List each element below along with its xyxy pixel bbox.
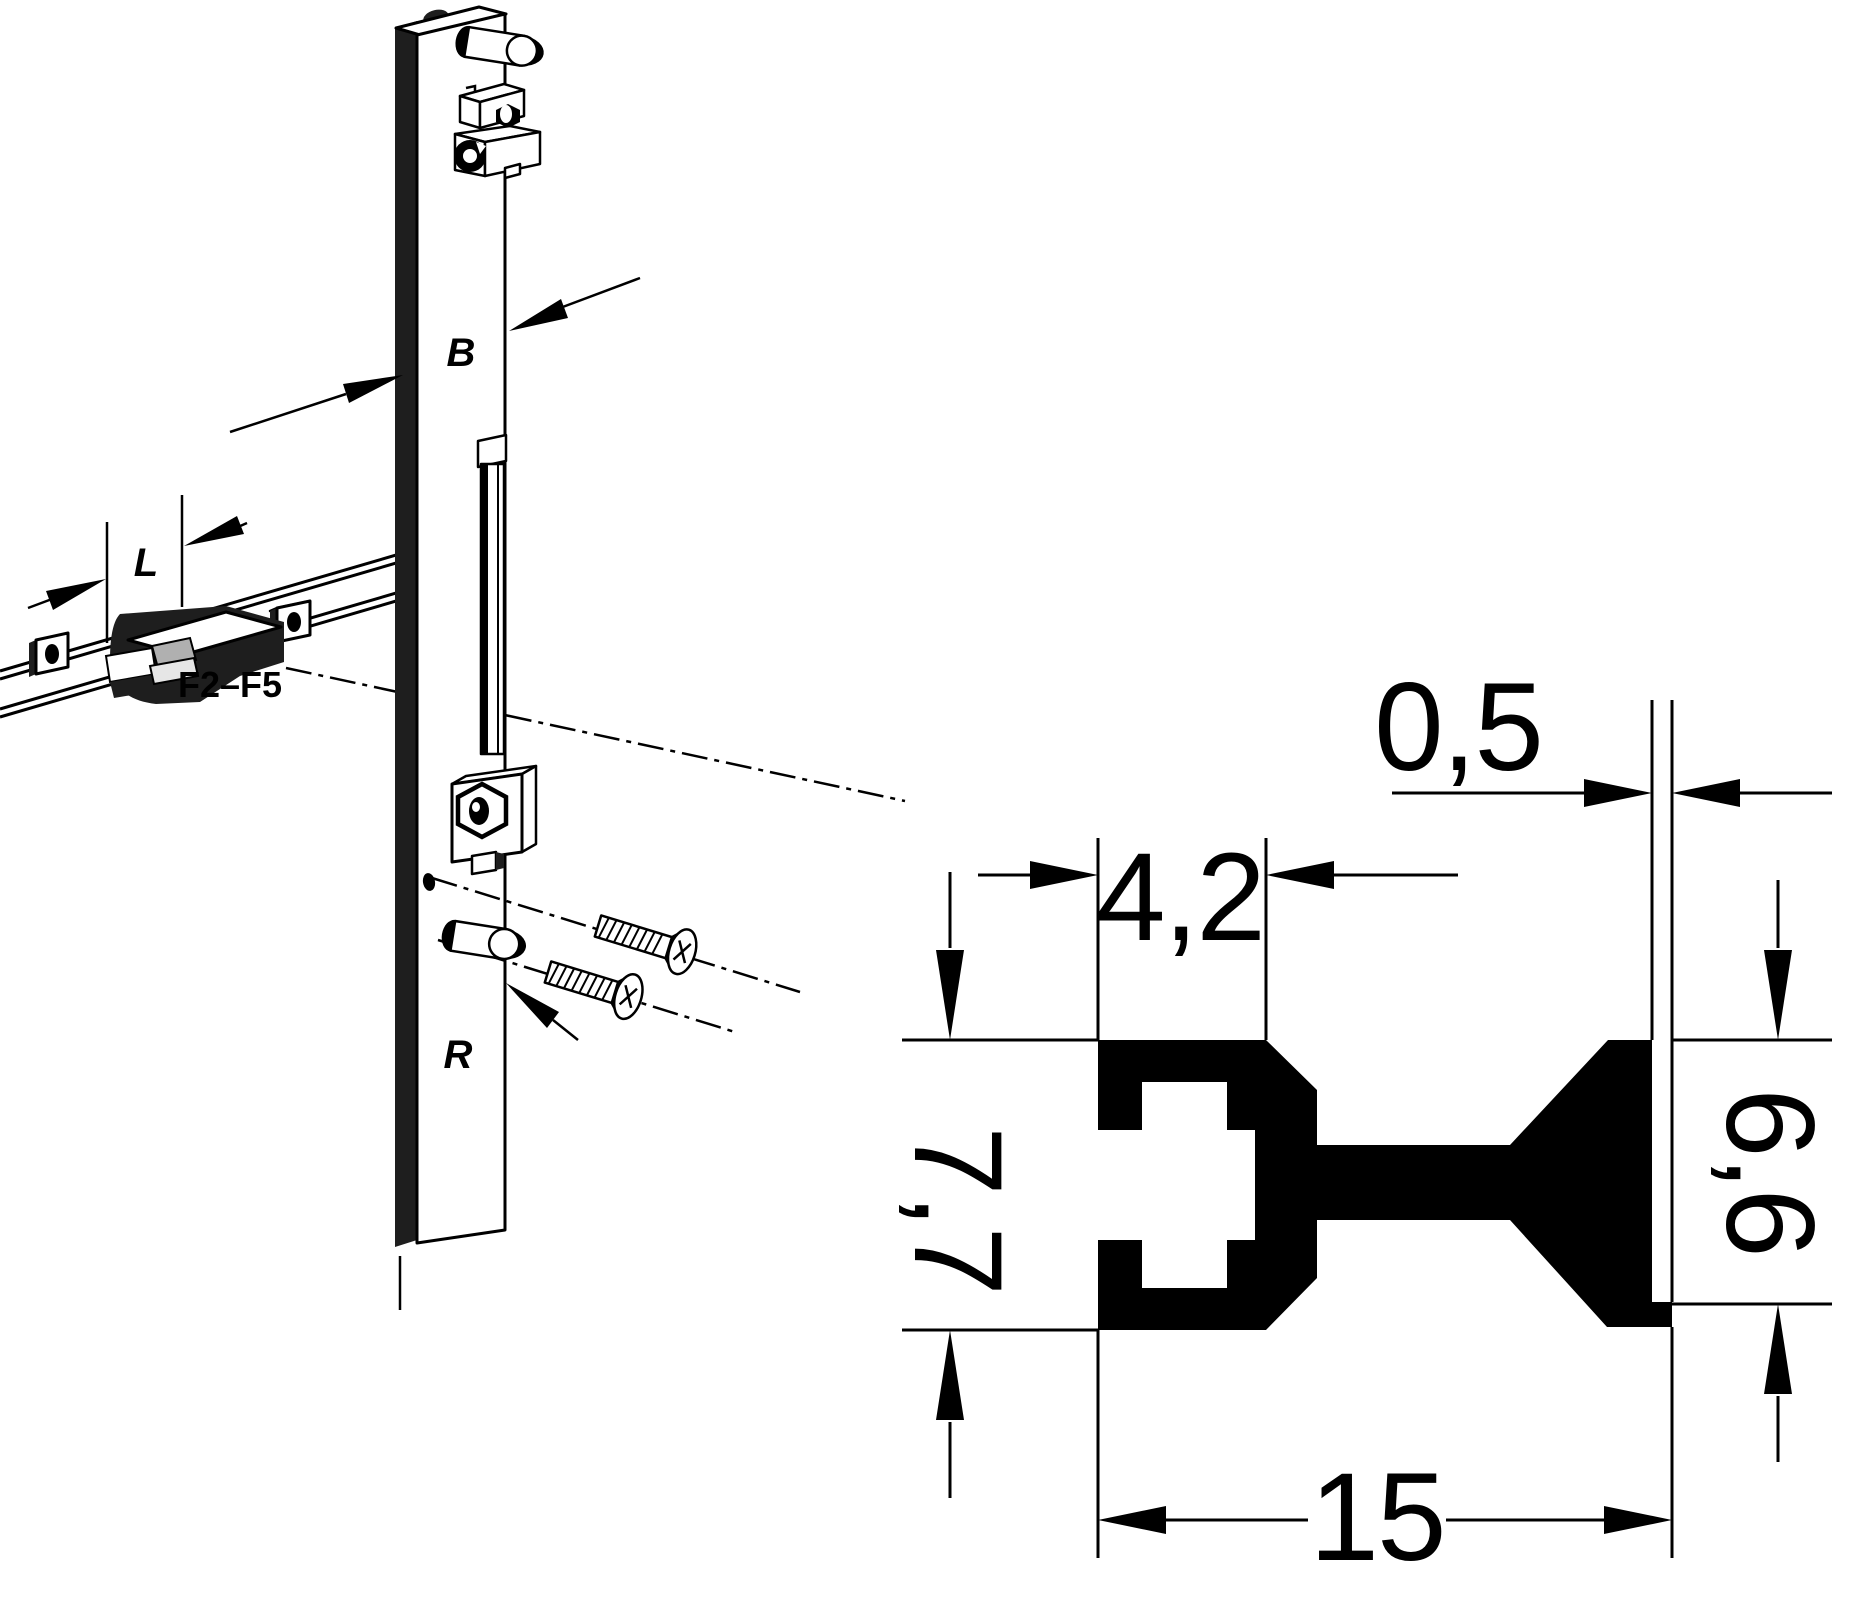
nut-hole-icon	[287, 612, 301, 632]
arrowhead-icon	[1030, 861, 1098, 889]
thickness-pointer	[230, 375, 403, 432]
label-clamp-range: F2–F5	[178, 664, 282, 705]
dim-text-6-6: 6,6	[1700, 1088, 1839, 1256]
label-l: L	[134, 541, 158, 585]
dim-text-7-7: 7,7	[888, 1126, 1027, 1294]
arrowhead-icon	[936, 950, 964, 1040]
arrowhead-icon	[1764, 950, 1792, 1040]
clamp-fitting	[454, 126, 540, 178]
arrowhead-icon	[1098, 1506, 1166, 1534]
arrowhead-icon	[1672, 779, 1740, 807]
face-slot	[478, 435, 506, 754]
rail-square-nut-left	[29, 633, 68, 677]
rail-axis-centerline	[286, 668, 905, 801]
dim-text-0-5: 0,5	[1374, 658, 1542, 797]
isometric-assembly-figure: L F2–F5	[0, 7, 905, 1310]
extension-lines	[902, 700, 1832, 1558]
dim-text-4-2: 4,2	[1096, 828, 1264, 967]
arrowhead-icon	[1584, 779, 1652, 807]
label-b: B	[447, 331, 476, 375]
arrowhead-icon	[936, 1330, 964, 1420]
arrowhead-icon	[46, 579, 106, 610]
arrowhead-icon	[1604, 1506, 1672, 1534]
lower-clamp-hex-nut	[452, 766, 536, 874]
dimension-0-5: 0,5	[1374, 658, 1832, 807]
dimension-6-6: 6,6	[1700, 880, 1839, 1462]
label-r: R	[444, 1033, 473, 1077]
arrowhead-icon	[343, 375, 403, 403]
dimension-4-2: 4,2	[978, 828, 1458, 967]
nut-hole-icon	[45, 644, 59, 664]
arrowhead-icon	[1764, 1304, 1792, 1394]
profile-cross-section-figure: 4,2 0,5 7,7 6,6	[888, 658, 1839, 1587]
dim-text-15: 15	[1309, 1448, 1444, 1587]
arrowhead-icon	[184, 516, 244, 546]
drawing-canvas: L F2–F5	[0, 0, 1855, 1598]
arrowhead-icon	[509, 299, 568, 331]
dimension-15: 15	[1098, 1448, 1672, 1587]
arrowhead-icon	[1266, 861, 1334, 889]
dimension-7-7: 7,7	[888, 872, 1027, 1498]
fastening-screw-upper	[591, 904, 701, 978]
technical-drawing-page: L F2–F5	[0, 0, 1855, 1598]
arrowhead-icon	[506, 983, 559, 1028]
